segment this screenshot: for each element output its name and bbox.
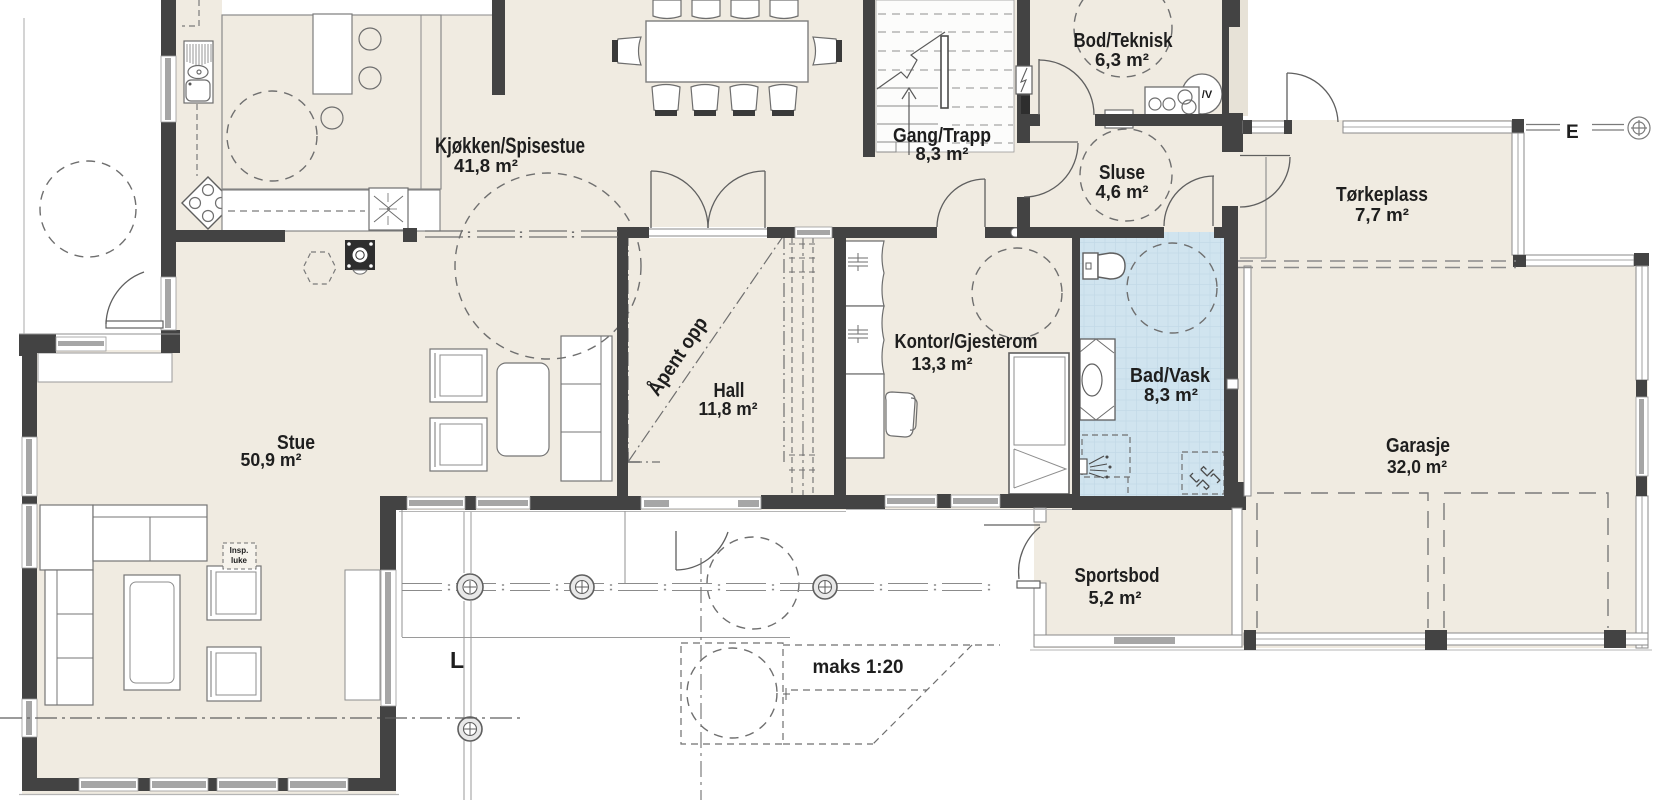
- svg-text:maks 1:20: maks 1:20: [813, 657, 904, 678]
- svg-text:13,3 m²: 13,3 m²: [912, 354, 973, 374]
- svg-text:Tørkeplass: Tørkeplass: [1336, 184, 1428, 206]
- svg-text:4,6 m²: 4,6 m²: [1096, 182, 1149, 202]
- svg-text:41,8 m²: 41,8 m²: [454, 156, 518, 176]
- svg-text:Sportsbod: Sportsbod: [1075, 565, 1160, 587]
- svg-text:11,8 m²: 11,8 m²: [699, 399, 758, 419]
- svg-text:Bod/Teknisk: Bod/Teknisk: [1074, 30, 1174, 52]
- svg-text:5,2 m²: 5,2 m²: [1089, 588, 1142, 608]
- svg-text:luke: luke: [231, 556, 248, 565]
- svg-text:Garasje: Garasje: [1386, 435, 1450, 457]
- svg-text:8,3 m²: 8,3 m²: [916, 144, 969, 164]
- svg-text:Bad/Vask: Bad/Vask: [1130, 365, 1211, 387]
- svg-text:Insp.: Insp.: [230, 546, 249, 555]
- svg-text:Sluse: Sluse: [1099, 162, 1145, 184]
- svg-text:L: L: [450, 647, 464, 673]
- svg-text:/V: /V: [1202, 89, 1213, 101]
- svg-text:7,7 m²: 7,7 m²: [1355, 205, 1409, 225]
- svg-text:Kjøkken/Spisestue: Kjøkken/Spisestue: [435, 133, 585, 158]
- svg-text:6,3 m²: 6,3 m²: [1095, 50, 1149, 70]
- svg-text:50,9 m²: 50,9 m²: [241, 450, 302, 470]
- svg-text:32,0 m²: 32,0 m²: [1387, 457, 1447, 477]
- svg-text:8,3 m²: 8,3 m²: [1144, 385, 1198, 405]
- svg-text:E: E: [1566, 122, 1579, 143]
- svg-text:Kontor/Gjesterom: Kontor/Gjesterom: [895, 331, 1038, 353]
